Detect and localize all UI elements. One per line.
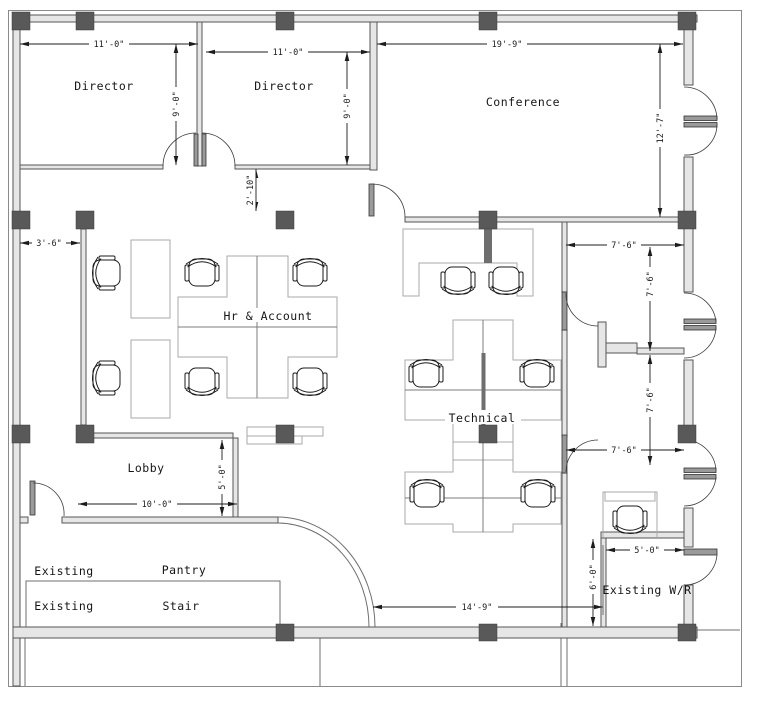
wall-wr-top xyxy=(601,532,684,538)
wall-tech-b xyxy=(562,330,567,437)
room-label-lobby: Lobby xyxy=(127,461,164,475)
conference-south-door xyxy=(369,184,405,217)
wall-bottom xyxy=(13,627,697,638)
chair xyxy=(185,368,219,396)
dim-director-2-depth: 9'-0" xyxy=(343,93,353,119)
room-label-director-1: Director xyxy=(74,79,133,93)
wall-conference-left xyxy=(370,22,377,170)
wall-lobby-bottom-a xyxy=(20,517,28,523)
room-label-conference: Conference xyxy=(486,95,560,109)
room-labels: Director Director Conference Hr & Accoun… xyxy=(34,79,691,613)
dim-wr-depth: 6'-0" xyxy=(589,564,599,590)
chair xyxy=(521,480,555,508)
room-label-pantry: Pantry xyxy=(162,563,207,577)
wall-room-divider xyxy=(637,348,684,354)
chair xyxy=(441,267,475,295)
room-label-technical: Technical xyxy=(449,411,516,425)
dim-room1-depth: 7'-6" xyxy=(646,271,656,297)
dim-room1-width: 7'-6" xyxy=(611,241,637,251)
dim-hr-left-offset: 3'-6" xyxy=(36,239,62,249)
dim-room2-width: 7'-6" xyxy=(611,446,637,456)
conference-east-double-door xyxy=(684,87,717,155)
wall-right-4 xyxy=(684,508,693,547)
dimensions: 11'-0" 11'-0" 19'-9" 3'-6" 7'-6" 7'-6" 1… xyxy=(20,39,684,627)
chair xyxy=(489,267,523,295)
dim-director-1-depth: 9'-0" xyxy=(172,91,182,117)
wall-director-bottom-a xyxy=(20,165,163,169)
dim-director-2-width: 11'-0" xyxy=(273,48,304,58)
wall-lobby-right xyxy=(233,438,238,518)
hr-table-1 xyxy=(131,240,170,318)
room-label-pantry-prefix: Existing xyxy=(34,564,93,578)
lobby-entry-door xyxy=(30,481,64,516)
room-label-stair-prefix: Existing xyxy=(34,599,93,613)
wall-curved-outer xyxy=(278,517,375,627)
chair xyxy=(520,360,554,388)
room1-west-door xyxy=(562,292,598,330)
dim-director-1-width: 11'-0" xyxy=(94,40,125,50)
dim-conference-depth: 12'-7" xyxy=(656,113,666,144)
wall-director-bottom-b xyxy=(235,165,377,169)
wr-east-door xyxy=(684,549,717,585)
room1-east-double-door xyxy=(684,293,716,358)
chair xyxy=(185,259,219,287)
chair xyxy=(93,361,121,395)
dim-lobby-width: 10'-0" xyxy=(142,500,173,510)
wall-hr-left xyxy=(81,229,86,425)
room-label-hr-account: Hr & Account xyxy=(223,309,312,323)
wall-tech-a xyxy=(562,222,567,292)
chair xyxy=(410,480,444,508)
wall-jog-horizontal xyxy=(606,343,637,353)
dim-conference-width: 19'-9" xyxy=(492,40,523,50)
wall-tech-c xyxy=(562,473,567,627)
furniture xyxy=(93,222,658,537)
hr-table-2 xyxy=(131,340,170,418)
chair xyxy=(293,368,327,396)
dim-wr-width: 5'-0" xyxy=(634,546,660,556)
dim-hr-top-opening: 2'-10" xyxy=(246,175,256,206)
wall-conference-bottom xyxy=(405,217,684,222)
chair xyxy=(293,259,327,287)
wall-jog-vertical xyxy=(598,322,606,367)
room2-east-double-door xyxy=(684,440,716,506)
chair xyxy=(613,506,647,534)
wall-lobby-bottom-b xyxy=(62,517,278,523)
wall-left xyxy=(13,15,20,686)
chair xyxy=(409,360,443,388)
floor-plan-page: 11'-0" 11'-0" 19'-9" 3'-6" 7'-6" 7'-6" 1… xyxy=(0,0,762,703)
room-label-director-2: Director xyxy=(254,79,313,93)
room-label-washroom: Existing W/R xyxy=(602,583,691,597)
wall-hr-bottom xyxy=(77,433,233,438)
dim-lobby-corridor: 5'-0" xyxy=(218,464,228,490)
room-label-stair: Stair xyxy=(162,599,199,613)
floor-plan-canvas: 11'-0" 11'-0" 19'-9" 3'-6" 7'-6" 7'-6" 1… xyxy=(0,0,762,703)
dim-room2-depth: 7'-6" xyxy=(646,387,656,413)
dim-open-area-width: 14'-9" xyxy=(462,603,493,613)
chair xyxy=(93,256,121,290)
room2-west-door xyxy=(562,435,598,473)
wall-top xyxy=(13,15,697,22)
wall-curved-inner xyxy=(278,523,369,627)
